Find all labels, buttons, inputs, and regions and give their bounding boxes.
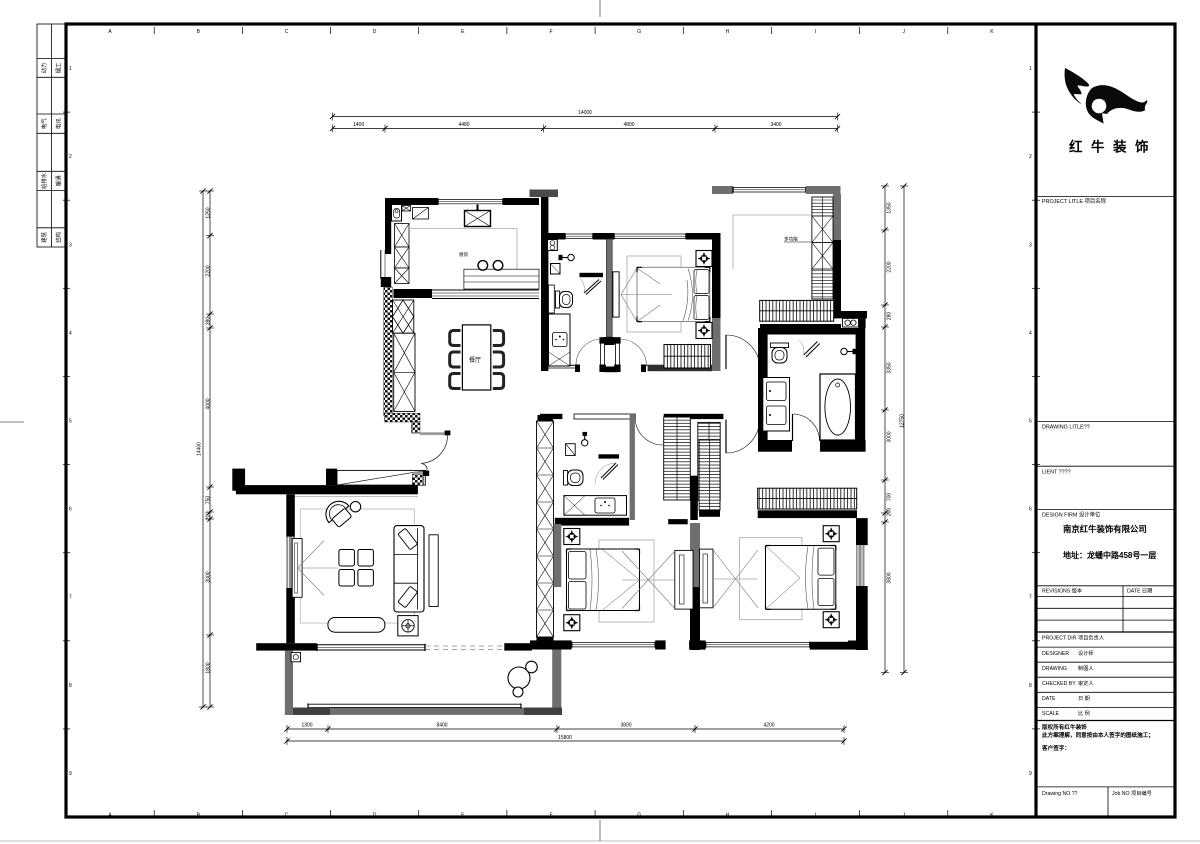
svg-text:电讯: 电讯 (55, 118, 63, 129)
svg-text:DATE 日期: DATE 日期 (1127, 588, 1152, 595)
svg-text:12750: 12750 (900, 414, 906, 428)
svg-text:2200: 2200 (206, 265, 212, 276)
svg-text:390: 390 (206, 317, 212, 326)
svg-text:客户签字：: 客户签字： (1041, 744, 1070, 752)
svg-text:6: 6 (69, 507, 72, 513)
svg-text:SCALE: SCALE (1042, 711, 1060, 717)
svg-text:建筑: 建筑 (40, 231, 48, 242)
svg-text:700: 700 (887, 493, 893, 502)
svg-text:F: F (549, 813, 552, 819)
svg-text:5: 5 (1029, 419, 1032, 425)
svg-text:1: 1 (1029, 66, 1032, 72)
svg-text:LIENT ????: LIENT ???? (1042, 470, 1071, 476)
svg-text:2: 2 (1029, 154, 1032, 160)
svg-text:3800: 3800 (887, 572, 893, 583)
svg-text:3000: 3000 (887, 431, 893, 442)
svg-text:项目负责人: 项目负责人 (1078, 634, 1104, 642)
svg-text:280: 280 (887, 312, 893, 321)
svg-text:制图人: 制图人 (1078, 664, 1094, 672)
svg-text:CHECKED BY: CHECKED BY (1042, 681, 1076, 687)
svg-text:设计师: 设计师 (1078, 649, 1094, 657)
svg-text:14000: 14000 (578, 110, 592, 116)
svg-text:200: 200 (887, 508, 893, 517)
svg-text:多功能: 多功能 (784, 236, 798, 243)
svg-text:2: 2 (69, 154, 72, 160)
svg-text:1350: 1350 (887, 202, 893, 213)
svg-text:3000: 3000 (206, 571, 212, 582)
svg-text:I: I (815, 29, 816, 35)
svg-text:厨房: 厨房 (459, 251, 469, 258)
svg-text:750: 750 (206, 496, 212, 505)
svg-text:电气: 电气 (40, 118, 48, 129)
svg-text:4000: 4000 (206, 398, 212, 409)
svg-text:版权所有红牛装饰: 版权所有红牛装饰 (1041, 723, 1087, 731)
svg-text:日 期: 日 期 (1078, 695, 1090, 702)
svg-text:D: D (373, 29, 377, 35)
svg-text:暖通: 暖通 (55, 175, 63, 186)
svg-text:4200: 4200 (763, 723, 774, 729)
svg-text:200: 200 (206, 512, 212, 521)
svg-text:14400: 14400 (197, 442, 203, 456)
svg-text:6: 6 (1029, 507, 1032, 513)
svg-text:Drawing NO ??: Drawing NO ?? (1042, 791, 1078, 797)
svg-text:5: 5 (69, 419, 72, 425)
svg-text:15800: 15800 (558, 735, 572, 741)
svg-text:3350: 3350 (887, 362, 893, 373)
svg-text:结构: 结构 (55, 231, 63, 242)
svg-text:7: 7 (69, 595, 72, 601)
svg-text:3: 3 (1029, 242, 1032, 248)
svg-text:7: 7 (1029, 595, 1032, 601)
svg-text:南京红牛装饰有限公司: 南京红牛装饰有限公司 (1063, 524, 1147, 534)
svg-text:1300: 1300 (301, 723, 312, 729)
svg-text:8400: 8400 (436, 723, 447, 729)
svg-text:9: 9 (1029, 771, 1032, 777)
svg-text:给排水: 给排水 (40, 172, 48, 189)
svg-text:I: I (815, 813, 816, 819)
svg-text:地址：龙蟠中路458号一层: 地址：龙蟠中路458号一层 (1063, 550, 1156, 560)
svg-text:烟工: 烟工 (55, 62, 63, 73)
svg-text:DATE: DATE (1042, 696, 1056, 702)
svg-text:Job NO 项目编号: Job NO 项目编号 (1112, 789, 1152, 797)
svg-text:8: 8 (1029, 683, 1032, 689)
svg-text:9: 9 (69, 771, 72, 777)
svg-text:1250: 1250 (206, 207, 212, 218)
svg-text:1800: 1800 (206, 662, 212, 673)
svg-text:C: C (285, 29, 289, 35)
svg-text:G: G (637, 29, 641, 35)
svg-text:2200: 2200 (887, 261, 893, 272)
svg-text:餐厅: 餐厅 (469, 356, 481, 364)
svg-text:REVISIONS 版本: REVISIONS 版本 (1042, 587, 1082, 595)
svg-text:4480: 4480 (458, 122, 469, 128)
svg-text:4: 4 (1029, 330, 1032, 336)
svg-text:1400: 1400 (353, 122, 364, 128)
svg-text:D: D (373, 813, 377, 819)
svg-text:8: 8 (69, 683, 72, 689)
svg-text:DESIGN FIRM 设计单位: DESIGN FIRM 设计单位 (1042, 511, 1101, 519)
svg-text:3: 3 (69, 242, 72, 248)
svg-text:比 例: 比 例 (1078, 709, 1090, 717)
svg-text:H: H (726, 29, 730, 35)
svg-text:PROJECT LITLE 项目名称: PROJECT LITLE 项目名称 (1042, 197, 1107, 205)
svg-text:PROJECT DIR: PROJECT DIR (1042, 636, 1077, 642)
svg-text:H: H (726, 813, 730, 819)
svg-text:DRAWING: DRAWING (1042, 666, 1067, 672)
svg-text:3400: 3400 (770, 122, 781, 128)
svg-text:F: F (549, 29, 552, 35)
svg-text:审定人: 审定人 (1078, 679, 1094, 687)
svg-text:1: 1 (69, 66, 72, 72)
svg-text:3800: 3800 (620, 723, 631, 729)
svg-text:4: 4 (69, 330, 72, 336)
svg-text:DRAWING LITLE??: DRAWING LITLE?? (1042, 425, 1090, 431)
svg-text:G: G (637, 813, 641, 819)
svg-text:红牛装饰: 红牛装饰 (1069, 139, 1157, 155)
svg-text:C: C (285, 813, 289, 819)
svg-text:DESIGNER: DESIGNER (1042, 651, 1069, 657)
svg-text:动力: 动力 (40, 63, 48, 74)
svg-text:4800: 4800 (623, 122, 634, 128)
svg-text:此方案理解，同意按由本人签字的图纸施工；: 此方案理解，同意按由本人签字的图纸施工； (1042, 731, 1154, 739)
